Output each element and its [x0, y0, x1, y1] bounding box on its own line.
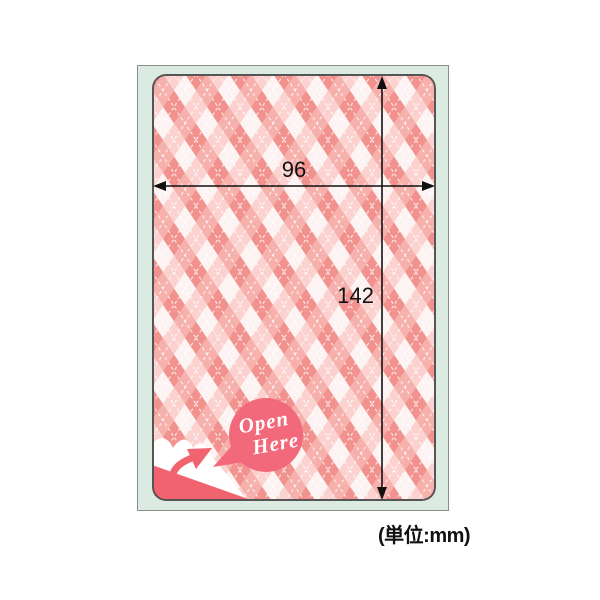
label-sticker: Open Here	[152, 74, 436, 501]
width-dimension-value: 96	[264, 157, 324, 183]
height-dimension-value: 142	[318, 283, 374, 309]
open-here-badge: Open Here	[229, 398, 303, 472]
unit-note: (単位:mm)	[378, 519, 498, 548]
badge-text: Open Here	[223, 392, 309, 478]
product-diagram: Open Here 96 142 (単位:mm)	[0, 0, 600, 600]
